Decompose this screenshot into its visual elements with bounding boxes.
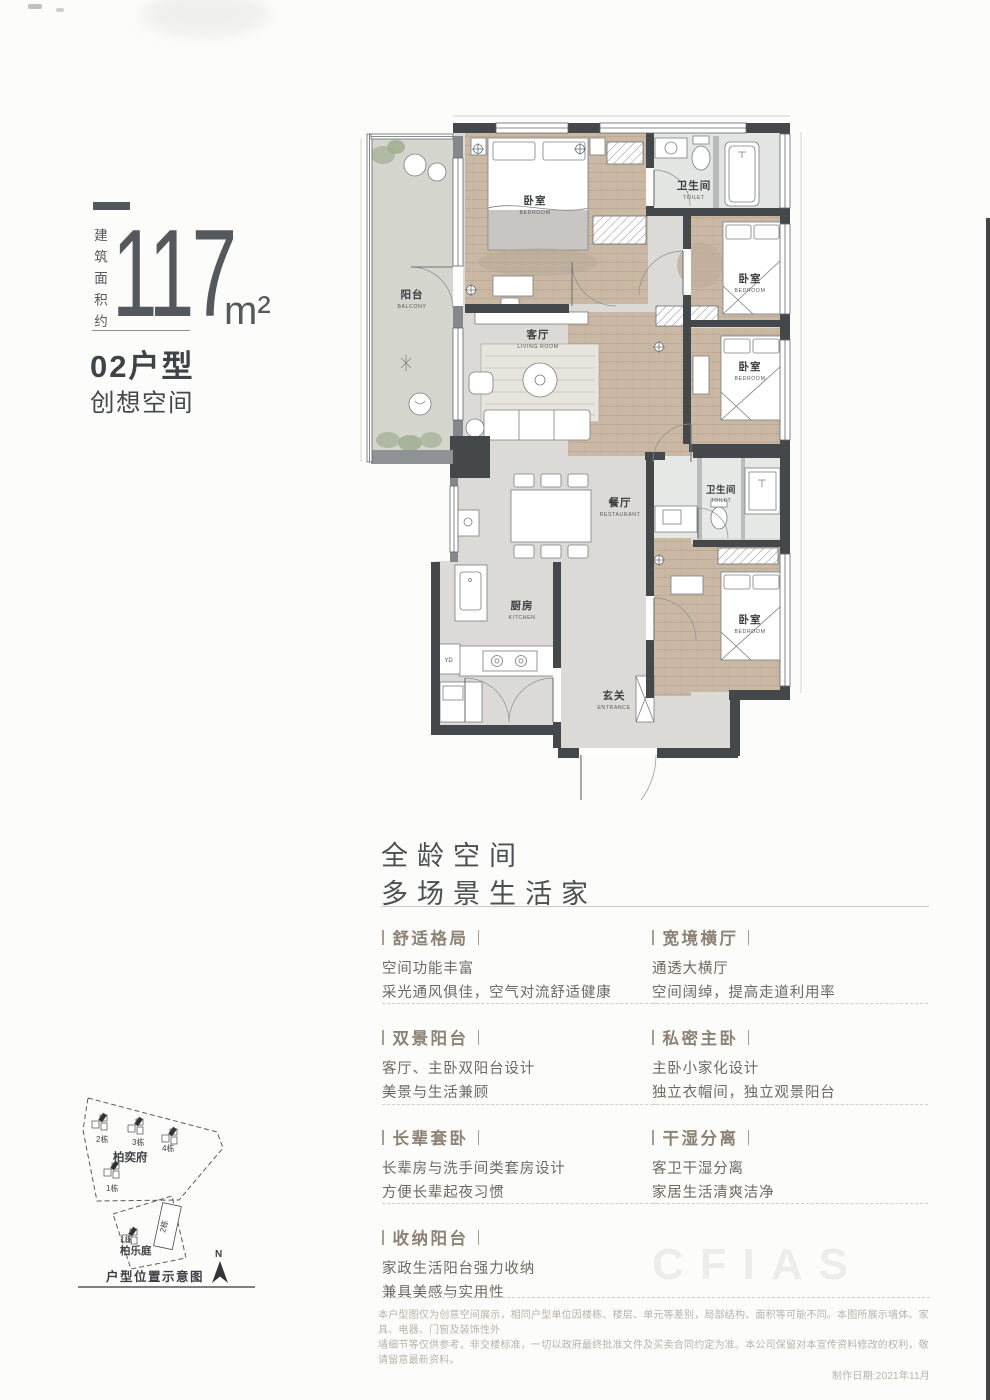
phase2-name: 柏乐庭 — [120, 1244, 152, 1257]
feature-comfort-layout: 舒适格局 空间功能丰富采光通风俱佳，空气对流舒适健康 — [382, 925, 654, 1005]
page-edge-bar — [986, 218, 990, 1400]
title-bar — [478, 1030, 480, 1045]
feature-title: 宽境横厅 — [663, 925, 739, 949]
feature-title: 舒适格局 — [393, 925, 469, 949]
feature-divider — [382, 1203, 658, 1204]
feature-title: 长辈套卧 — [393, 1125, 469, 1149]
feature-divider — [382, 1297, 930, 1298]
feature-elder-suite: 长辈套卧 长辈房与洗手间类套房设计方便长辈起夜习惯 — [382, 1125, 654, 1205]
bedroom-upper-label-cn: 卧室 — [739, 272, 762, 285]
dining-furniture — [511, 474, 591, 558]
title-bar — [748, 1130, 750, 1145]
feature-line2: 美景与生活兼顾 — [382, 1082, 654, 1106]
disclaimer-line2: 墙细节等仅供参考，非交楼标准，一切以政府最终批准文件及买卖合同约定为准。本公司保… — [378, 1338, 930, 1368]
feature-title: 私密主卧 — [663, 1025, 739, 1049]
feature-line2: 家居生活清爽洁净 — [652, 1182, 924, 1206]
title-bar — [478, 1230, 480, 1245]
feature-divider — [382, 1104, 658, 1105]
title-bar — [652, 930, 654, 945]
phase1-name: 柏奕府 — [113, 1150, 148, 1164]
dining-label-en: RESTAURANT — [600, 512, 641, 518]
bath-top-label-en: TOILET — [683, 195, 705, 201]
feature-double-balcony: 双景阳台 客厅、主卧双阳台设计美景与生活兼顾 — [382, 1025, 654, 1105]
bath-mid-label-en: TOILET — [711, 498, 731, 504]
feature-line1: 客厅、主卧双阳台设计 — [382, 1058, 654, 1082]
scan-speck — [56, 8, 64, 12]
feature-divider — [652, 1003, 928, 1004]
scan-speck — [28, 4, 42, 9]
building-label-1: 1栋 — [106, 1183, 118, 1193]
watermark-text: CFIAS — [652, 1240, 864, 1290]
building-label-2: 2栋 — [96, 1134, 108, 1144]
bedroom-middle-label-en: BEDROOM — [734, 376, 765, 382]
area-unit: m² — [224, 289, 271, 334]
title-bar — [748, 930, 750, 945]
feature-line2: 空间阔绰，提高走道利用率 — [652, 982, 924, 1006]
bedroom-lower-label-en: BEDROOM — [734, 629, 765, 635]
master-bedroom-label-en: BEDROOM — [519, 210, 550, 216]
feature-line2: 兼具美感与实用性 — [382, 1282, 654, 1306]
living-label-cn: 客厅 — [526, 328, 550, 341]
disclaimer-date: 制作日期:2021年11月 — [378, 1369, 930, 1384]
feature-title: 干湿分离 — [663, 1125, 739, 1149]
site-location-map: 2栋 3栋 4栋 柏奕府 1栋 1栋 柏乐庭 2栋 N 户型位置示意图 — [70, 1085, 265, 1295]
floorplan: 阳台 BALCONY 卧室 BEDROOM 卫生间 TOILET 卧室 BEDR… — [353, 110, 843, 800]
sitemap-caption: 户型位置示意图 — [106, 1269, 204, 1284]
heading-divider — [381, 906, 929, 907]
north-arrow — [212, 1261, 228, 1283]
feature-wet-dry: 干湿分离 客卫干湿分离家居生活清爽洁净 — [652, 1125, 924, 1205]
feature-line2: 方便长辈起夜习惯 — [382, 1182, 654, 1206]
title-bar — [478, 1130, 480, 1145]
title-bar — [382, 1030, 384, 1045]
feature-divider — [652, 1104, 928, 1105]
title-bar — [652, 1030, 654, 1045]
unit-type-title: 02户型 — [90, 341, 194, 386]
feature-line2: 独立衣帽间，独立观景阳台 — [652, 1082, 924, 1106]
kitchen-label-en: KITCHEN — [509, 615, 536, 621]
title-bar — [382, 1230, 384, 1245]
bedroom-middle-label-cn: 卧室 — [739, 360, 762, 373]
entrance-label-en: ENTRANCE — [597, 705, 630, 711]
title-bar — [382, 930, 384, 945]
bedroom-upper-label-en: BEDROOM — [734, 288, 765, 294]
kitchen-label-cn: 厨房 — [511, 599, 534, 612]
scan-smudge — [140, 0, 270, 38]
feature-line1: 家政生活阳台强力收纳 — [382, 1258, 654, 1282]
master-bedroom-label-cn: 卧室 — [524, 194, 547, 207]
area-prefix-vertical-label: 建筑面积约 — [89, 228, 109, 336]
feature-divider — [652, 1203, 928, 1204]
bath-mid-label-cn: 卫生间 — [706, 484, 736, 496]
building-label-4: 4栋 — [162, 1143, 174, 1153]
title-bar — [382, 1130, 384, 1145]
balcony-label-en: BALCONY — [398, 304, 427, 310]
disclaimer-line1: 本户型图仅为创意空间展示，相同户型单位因楼栋、楼层、单元等差别，局部结构、面积等… — [378, 1308, 930, 1338]
phase2-building-label-1: 1栋 — [120, 1234, 132, 1244]
title-bar — [748, 1030, 750, 1045]
unit-type-subtitle: 创想空间 — [90, 384, 194, 419]
feature-wide-hall: 宽境横厅 通透大横厅空间阔绰，提高走道利用率 — [652, 925, 924, 1005]
feature-line1: 通透大横厅 — [652, 958, 924, 982]
building-label-3: 3栋 — [132, 1137, 144, 1147]
feature-line2: 采光通风俱佳，空气对流舒适健康 — [382, 982, 654, 1006]
bath-top-label-cn: 卫生间 — [677, 179, 712, 192]
feature-line1: 主卧小家化设计 — [652, 1058, 924, 1082]
bedroom-lower-label-cn: 卧室 — [739, 613, 762, 626]
living-label-en: LIVING ROOM — [517, 344, 558, 350]
features-heading-line1: 全龄空间 — [381, 834, 525, 873]
feature-private-master: 私密主卧 主卧小家化设计独立衣帽间，独立观景阳台 — [652, 1025, 924, 1105]
divider-rule — [92, 330, 190, 331]
feature-divider — [382, 1003, 658, 1004]
feature-line1: 长辈房与洗手间类套房设计 — [382, 1158, 654, 1182]
north-label: N — [215, 1249, 222, 1260]
dining-label-cn: 餐厅 — [608, 496, 632, 509]
feature-line1: 客卫干湿分离 — [652, 1158, 924, 1182]
feature-storage-balcony: 收纳阳台 家政生活阳台强力收纳兼具美感与实用性 — [382, 1225, 654, 1305]
area-number: 117 — [112, 222, 235, 326]
balcony-label-cn: 阳台 — [401, 288, 424, 301]
entrance-label-cn: 玄关 — [603, 689, 626, 702]
washer-label: YD — [444, 658, 453, 664]
feature-title: 双景阳台 — [393, 1025, 469, 1049]
feature-line1: 空间功能丰富 — [382, 958, 654, 982]
title-bar — [652, 1130, 654, 1145]
disclaimer: 本户型图仅为创意空间展示，相同户型单位因楼栋、楼层、单元等差别，局部结构、面积等… — [378, 1308, 930, 1384]
feature-title: 收纳阳台 — [393, 1225, 469, 1249]
title-bar — [478, 930, 480, 945]
